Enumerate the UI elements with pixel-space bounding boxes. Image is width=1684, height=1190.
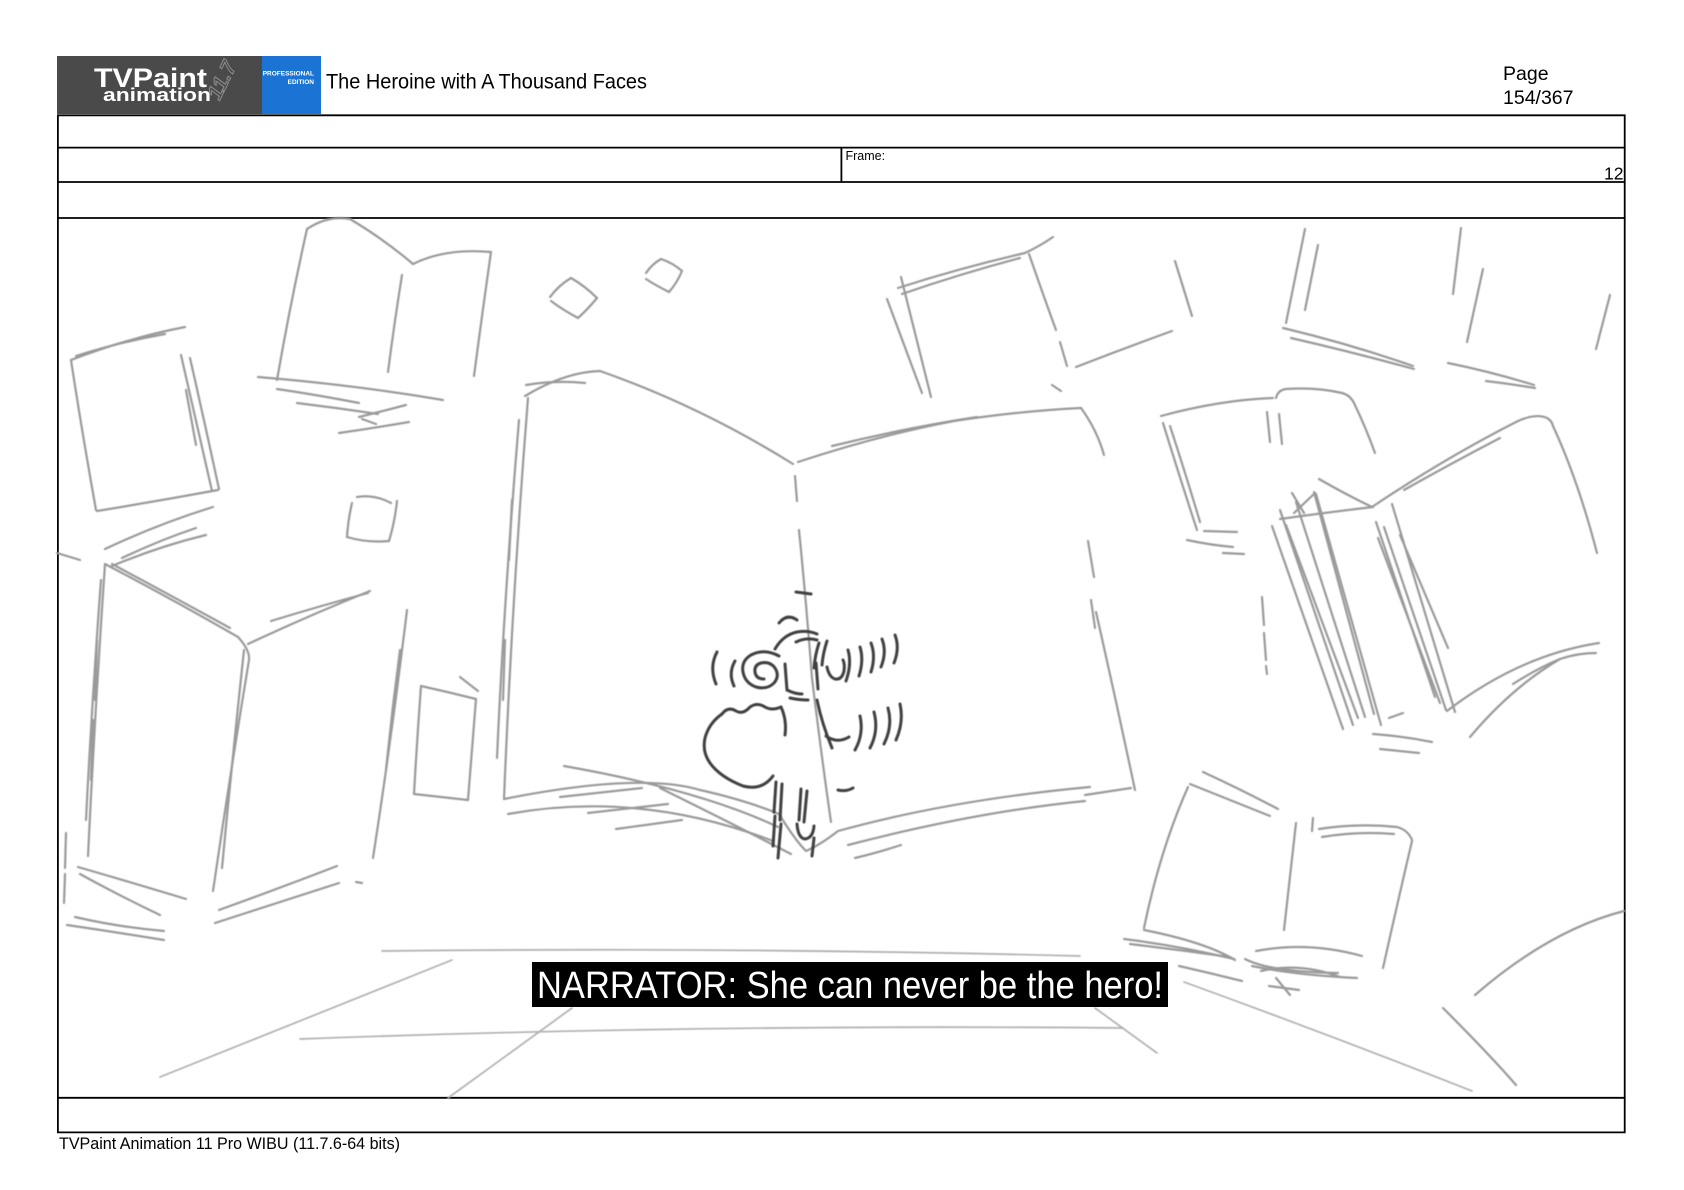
svg-text:The Heroine with A Thousand Fa: The Heroine with A Thousand Faces	[326, 71, 647, 94]
svg-text:12: 12	[1604, 164, 1623, 184]
svg-text:animation: animation	[103, 85, 211, 105]
svg-text:EDITION: EDITION	[288, 79, 315, 86]
svg-text:154/367: 154/367	[1503, 87, 1574, 109]
svg-text:Frame:: Frame:	[846, 149, 886, 163]
svg-text:NARRATOR: She can never be the: NARRATOR: She can never be the hero!	[537, 965, 1163, 1007]
svg-text:PROFESSIONAL: PROFESSIONAL	[263, 71, 314, 78]
svg-text:Page: Page	[1503, 63, 1549, 85]
svg-text:TVPaint Animation 11 Pro WIBU: TVPaint Animation 11 Pro WIBU (11.7.6-64…	[59, 1135, 400, 1153]
